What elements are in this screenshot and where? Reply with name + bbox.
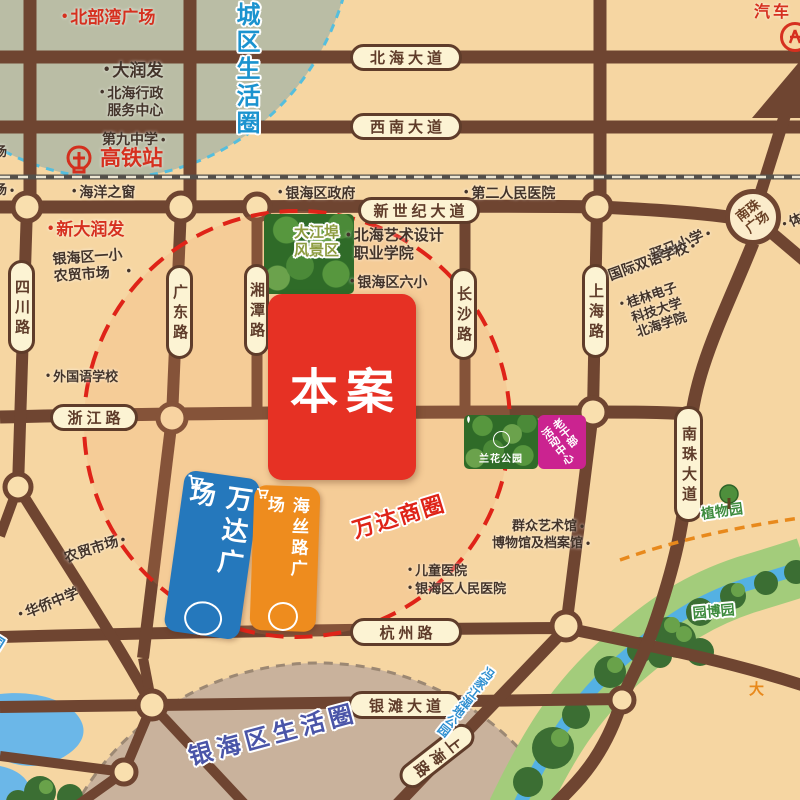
poi-label: 场 [0,182,7,198]
site-marker: 本案 [268,294,416,480]
poi-yinhai-no1-market: 银海区一小 农贸市场• [52,246,132,285]
poi-bullet: • [346,227,351,263]
poi-label: 北海艺术设计 职业学院 [354,227,444,263]
poi-foreign-language-school: •外国语学校 [46,369,118,385]
road-pill-label: 杭州路 [375,622,436,643]
poi-beibuwan-square: •北部湾广场 [62,8,155,28]
park-logo-icon [493,431,510,448]
poi-label: 银海区人民医院 [415,581,506,597]
poi-bullet: • [104,61,109,81]
road-pill-label: 银滩大道 [365,695,445,716]
poi-label: 银海区六小 [357,274,427,291]
poi-label: 海洋之窗 [79,184,135,201]
poi-gaotie-station: 高铁站 [100,146,163,171]
poi-bullet: • [586,537,590,551]
road-pill-label: 浙江路 [63,407,124,428]
poi-bullet: • [72,184,76,201]
road-pill-beihai-avenue: 北海大道 [350,44,462,71]
poi-da-partial: 大 [749,681,764,699]
laoganbu-activity-center-marker: 老干部 活动中心 [538,415,586,469]
poi-label: 银海区政府 [285,185,355,202]
road-pill-hangzhou-road: 杭州路 [350,618,462,646]
poi-label: 汽车 [754,3,792,22]
poi-bullet: • [580,520,584,534]
poi-darunfa: •大润发 [104,61,163,81]
road-pill-guangdong-road: 广东路 [166,265,193,359]
lanhua-park-label: 兰花公园 [479,450,523,465]
poi-bullet: • [10,184,14,198]
road-pill-changsha-road: 长沙路 [450,268,477,360]
chengqu-life-circle-zone [0,0,354,178]
road-pill-label: 北海大道 [366,47,446,68]
nanzhu-plaza-label: 南珠 广场 [734,197,773,237]
wanda-plaza-label: 万达广场 [170,478,259,601]
poi-left-partial-1: 场 [0,144,7,160]
location-map: 本案 万达广场 海丝路广场 老干部 活动中心 兰花公园 南珠 广场 城区生活圈 … [0,0,800,800]
laoganbu-activity-center-label: 老干部 活动中心 [538,416,586,468]
poi-bullet: • [126,264,131,279]
poi-yinhai-gov: •银海区政府 [278,185,355,202]
poi-children-hospital: •儿童医院 [408,563,467,579]
road-pill-label: 南珠大道 [678,422,699,506]
road-pill-xiangtan-road: 湘潭路 [244,264,269,356]
poi-label: 高铁站 [100,146,163,171]
poi-label: 大江埠 风景区 [294,224,339,260]
bus-station-logo-icon [780,22,800,52]
poi-no2-hospital: •第二人民医院 [464,185,555,202]
haisilu-plaza-label: 海丝路广场 [259,495,312,597]
road-pill-xinshiji-avenue: 新世纪大道 [358,197,480,224]
poi-qiche-station: 汽车 [754,3,792,22]
road-pill-xinan-avenue: 西南大道 [350,113,462,140]
poi-bullet: • [408,581,412,597]
road-pill-shanghai-road: 上海路 [582,264,609,358]
road-pill-label: 新世纪大道 [369,200,468,221]
wanda-cart-icon [182,599,224,638]
poi-label: 大 [749,681,764,699]
haisilu-cart-icon [267,602,298,632]
poi-bullet: • [62,8,67,28]
poi-left-partial-2: 场• [0,182,14,198]
poi-yinhai-no6: •银海区六小 [350,274,427,291]
road-pill-label: 上海路 [585,279,606,343]
site-label: 本案 [282,352,402,422]
poi-dajiangbu-label: 大江埠 风景区 [294,224,339,260]
nanzhu-plaza-circle: 南珠 广场 [725,189,781,245]
road-continuation-arrow [752,60,800,118]
haisilu-plaza-marker: 海丝路广场 [249,485,320,632]
poi-bullet: • [48,220,53,240]
poi-qunzhong-art: 群众艺术馆• [512,518,584,534]
poi-haiyang-window: •海洋之窗 [72,184,135,201]
poi-bullet: • [46,369,50,385]
road-pill-label: 西南大道 [366,116,446,137]
road-pill-label: 四川路 [11,275,32,339]
poi-bullet: • [464,185,468,202]
poi-label: 银海区一小 农贸市场 [52,246,124,284]
poi-label: 北海行政 服务中心 [107,85,163,119]
poi-xin-darunfa: •新大润发 [48,220,124,240]
poi-label: 群众艺术馆 [512,518,577,534]
poi-label: 儿童医院 [415,563,467,579]
poi-bullet: • [100,85,104,119]
road-pill-label: 长沙路 [453,282,474,346]
poi-bullet: • [350,274,354,291]
poi-bullet: • [278,185,282,202]
poi-label: 北部湾广场 [70,8,155,28]
zone-label-chengqu: 城区生活圈 [228,2,263,137]
poi-label: 第二人民医院 [471,185,555,202]
poi-xingzheng-center: •北海行政 服务中心 [100,85,163,119]
poi-label: 大润发 [112,61,163,81]
poi-yinhai-people-hospital: •银海区人民医院 [408,581,506,597]
lanhua-park-marker: 兰花公园 [464,415,538,469]
road-pill-zhejiang-road: 浙江路 [50,404,138,431]
poi-label: 博物馆及档案馆 [492,535,583,551]
road-pill-sichuan-road: 四川路 [8,260,35,354]
road-pill-label: 广东路 [169,280,190,344]
poi-art-college: •北海艺术设计 职业学院 [346,227,444,263]
poi-label: 场 [0,144,7,160]
poi-bullet: • [408,563,412,579]
poi-museum-archives: 博物馆及档案馆• [492,535,590,551]
poi-label: 外国语学校 [53,369,118,385]
poi-label: 新大润发 [56,220,124,240]
road-pill-label: 湘潭路 [246,278,267,342]
road-pill-nanzhu-avenue: 南珠大道 [674,406,703,522]
